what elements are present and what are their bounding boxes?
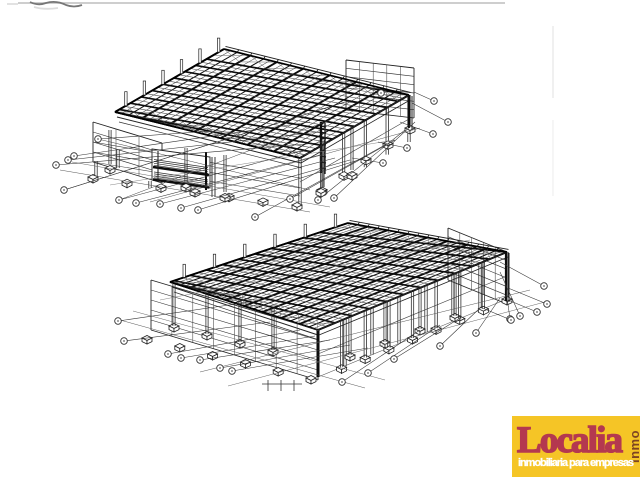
svg-text:Localia: Localia [517,420,623,461]
svg-text:inmobiliaria para empresas: inmobiliaria para empresas [518,457,634,469]
